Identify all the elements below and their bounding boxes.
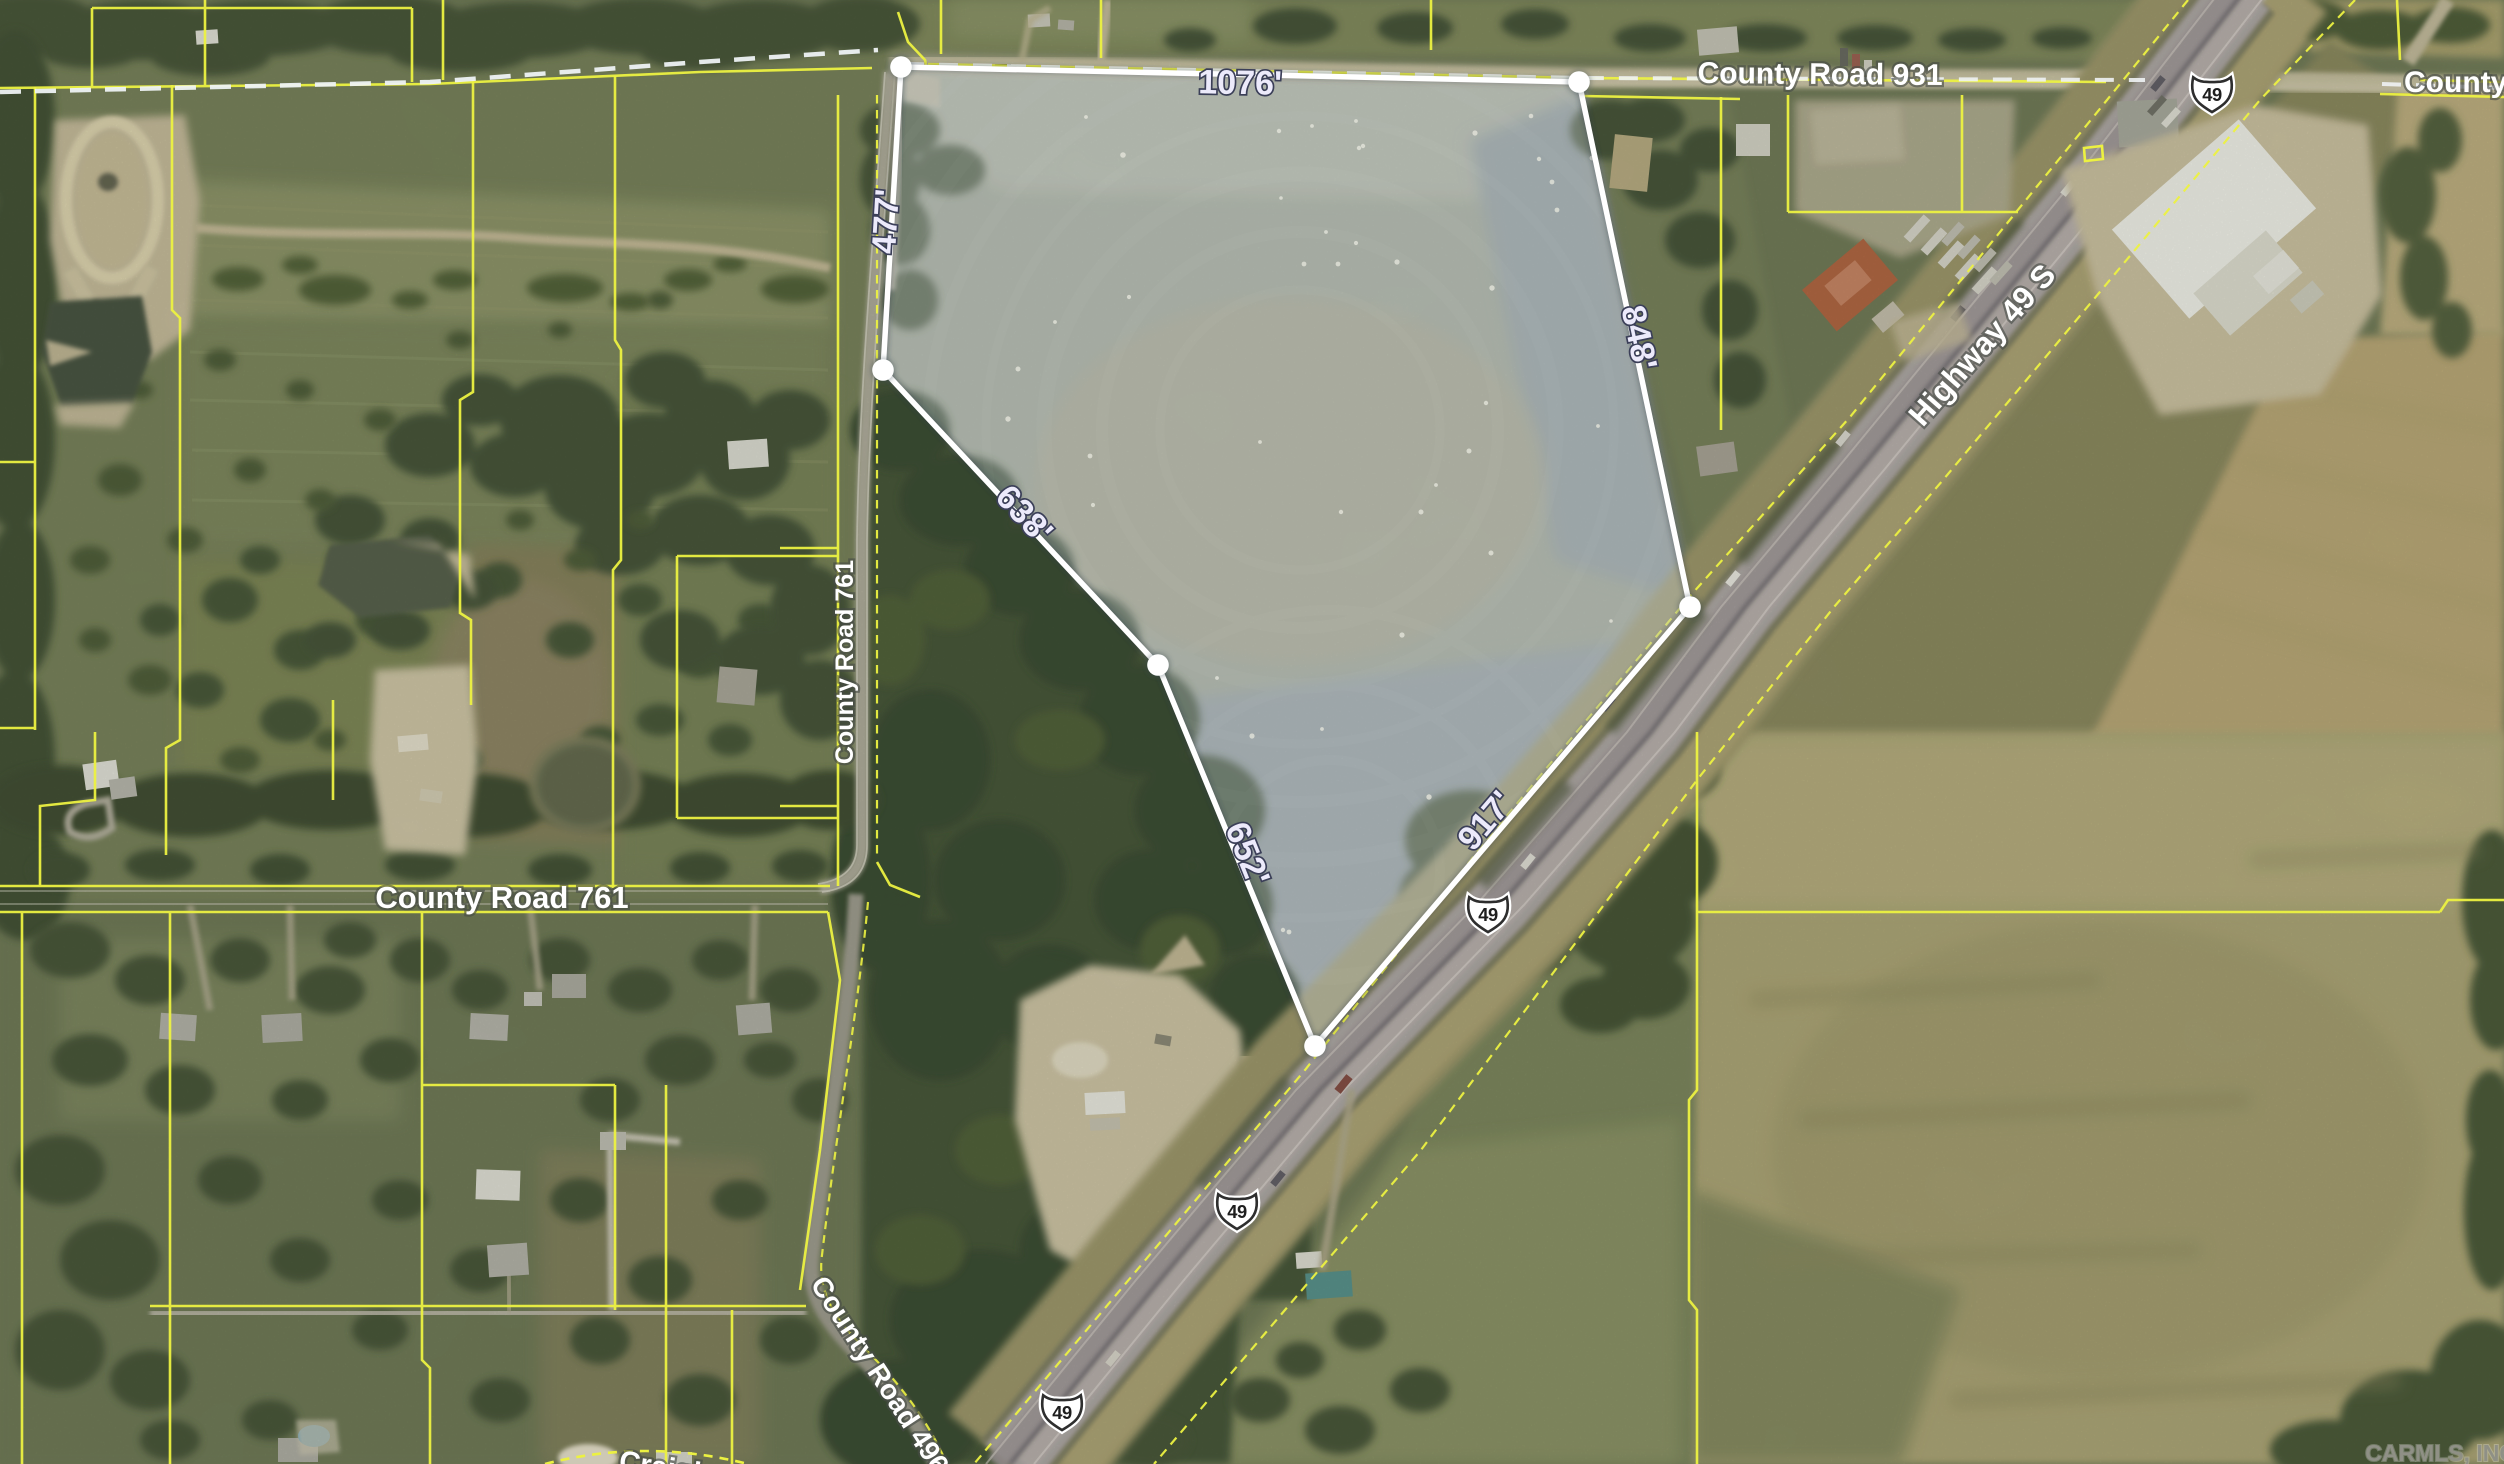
svg-text:49: 49: [1052, 1402, 1072, 1423]
svg-text:County Road 931: County Road 931: [1697, 57, 1942, 92]
svg-text:County R: County R: [2404, 66, 2504, 99]
svg-text:49: 49: [1227, 1201, 1247, 1222]
svg-text:49: 49: [2202, 84, 2222, 105]
svg-text:County Road 761: County Road 761: [375, 880, 628, 915]
svg-text:CARMLS, INC: CARMLS, INC: [2365, 1440, 2504, 1464]
svg-text:County Road 761: County Road 761: [831, 560, 859, 764]
svg-text:1076': 1076': [1198, 63, 1282, 102]
svg-text:477': 477': [865, 188, 907, 255]
svg-text:49: 49: [1478, 904, 1498, 925]
